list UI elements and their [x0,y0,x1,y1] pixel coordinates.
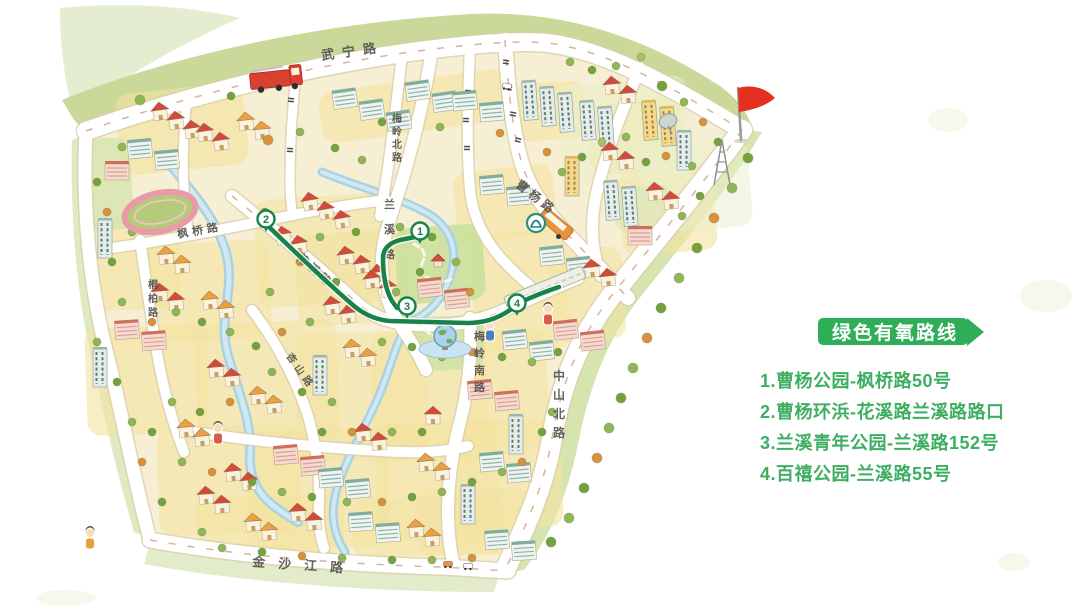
tree [103,208,111,216]
paper-splotch [928,108,968,132]
tree [308,493,316,501]
kid-character [86,526,95,549]
tree [138,458,146,466]
tree [392,288,400,296]
tree [388,556,396,564]
tree [252,342,260,350]
building-cluster [313,355,327,395]
tree [598,138,606,146]
tree [696,192,704,200]
tree [416,268,424,276]
tree [727,183,737,193]
tree [452,258,460,266]
tree [108,258,116,266]
tree [396,223,404,231]
tree [328,398,336,406]
tree [148,428,156,436]
tree [743,153,753,163]
tree [428,233,436,241]
tree [538,428,546,436]
tree [699,118,707,126]
tree [248,478,256,486]
tree [622,133,630,141]
metro-station-icon [527,214,545,232]
tree [158,498,166,506]
tree [128,418,136,426]
tree [642,158,650,166]
building-cluster [461,484,475,524]
tree [674,273,684,283]
tree [642,333,652,343]
tree [278,488,286,496]
tree [148,318,156,326]
tree [496,129,504,137]
tree [118,298,126,306]
illustrated-map: 武宁路曹杨路中山北路金沙江路梅岭南路梅岭北路兰溪路花溪路枫桥路桐柏路杏山路123… [0,0,1080,608]
tree [546,537,556,547]
tree [662,152,670,160]
tree [408,343,416,351]
tree [388,428,396,436]
paper-splotch [36,590,96,606]
tree [466,288,474,296]
svg-text:2: 2 [263,214,269,226]
tree [331,144,339,152]
svg-text:4: 4 [514,298,521,310]
tree [692,243,702,253]
tree [436,123,444,131]
tree [688,162,696,170]
tree [298,388,306,396]
tree [554,348,562,356]
tree [93,338,101,346]
building-cluster [565,156,579,196]
tree [680,98,688,106]
tree [378,338,386,346]
tree [468,478,476,486]
tree [408,493,416,501]
tree [227,92,235,100]
tree [316,233,324,241]
tree [588,66,596,74]
tree [218,544,226,552]
tree [564,513,574,523]
building-cluster [509,414,523,454]
tree [198,318,206,326]
building-cluster [93,347,107,387]
tree [709,213,719,223]
tree [318,428,326,436]
svg-text:1: 1 [417,226,423,238]
tree [628,363,638,373]
tree [378,118,386,126]
tree [226,328,234,336]
tree [528,358,536,366]
tree [579,483,589,493]
building-cluster [628,226,652,245]
tree [518,458,526,466]
tree [93,178,101,186]
tree [637,53,645,61]
tree [198,528,206,536]
building-cluster [105,161,129,180]
tree [306,318,314,326]
tree [418,428,426,436]
tree [208,468,216,476]
tree [343,498,351,506]
tree [263,135,273,145]
route-map-poster: 武宁路曹杨路中山北路金沙江路梅岭南路梅岭北路兰溪路花溪路枫桥路桐柏路杏山路123… [0,0,1080,608]
tree [656,303,666,313]
tree [678,212,686,220]
tree [428,556,436,564]
paper-splotch [998,553,1030,571]
tree [352,228,360,236]
tree [578,153,586,161]
building-cluster [98,218,112,258]
tree [296,128,304,136]
tree [348,428,356,436]
svg-text:3: 3 [404,301,410,313]
tree [358,156,366,164]
paper-splotch [1020,280,1072,312]
tree [438,488,446,496]
tree [604,423,614,433]
tree [135,95,145,105]
tree [558,168,566,176]
tree [468,554,476,562]
tree [543,148,551,156]
tree [196,408,204,416]
tree [268,368,276,376]
tree [266,288,274,296]
tree [178,458,186,466]
tree [592,453,602,463]
tree [566,58,574,66]
tree [612,62,620,70]
tree [278,328,286,336]
tree [378,498,386,506]
tree [113,378,121,386]
tree [657,81,667,91]
tree [498,468,506,476]
tree [172,308,180,316]
road-label-tongbai: 桐柏路 [148,278,159,319]
tree [498,353,506,361]
tree [168,398,176,406]
tree [616,393,626,403]
tree [226,398,234,406]
tree [118,143,126,151]
